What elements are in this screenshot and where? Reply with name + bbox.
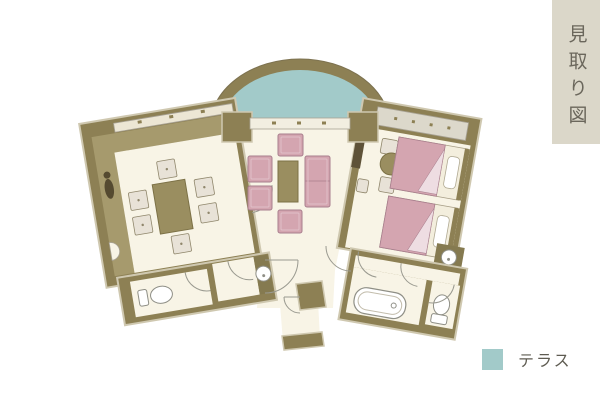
coffee-table <box>278 161 298 202</box>
page-title: 見取り図 <box>563 24 590 144</box>
wall-pillar <box>222 112 252 142</box>
wall-pillar <box>348 112 378 142</box>
terrace-legend: テラス <box>482 347 572 371</box>
hall-wall-stub <box>296 281 326 310</box>
armchair <box>248 156 272 182</box>
entrance-step <box>282 332 324 350</box>
floor-plan-page: 見取り図 テラス <box>0 0 600 400</box>
floor-plan <box>0 0 600 400</box>
sofa <box>305 156 330 207</box>
page-title-banner: 見取り図 <box>552 0 600 144</box>
terrace-swatch <box>482 349 503 370</box>
chair <box>356 178 369 193</box>
terrace-legend-label: テラス <box>518 347 572 371</box>
